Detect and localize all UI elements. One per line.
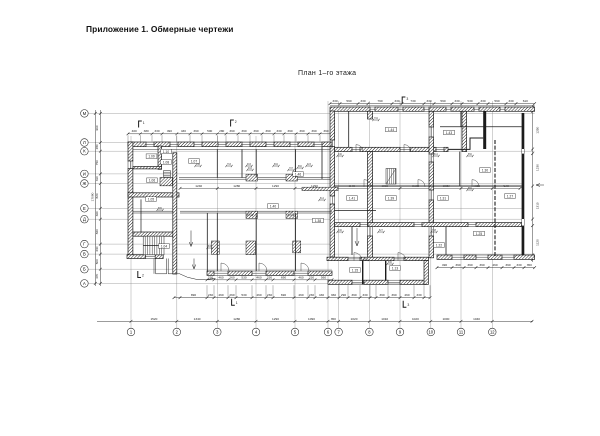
svg-text:690: 690 (281, 276, 286, 280)
svg-text:910: 910 (248, 212, 253, 215)
svg-text:730: 730 (410, 99, 415, 103)
svg-text:330: 330 (332, 99, 337, 103)
svg-text:2: 2 (142, 274, 144, 278)
svg-text:230: 230 (208, 293, 213, 297)
svg-text:Л: Л (83, 140, 86, 145)
svg-text:390: 390 (323, 129, 328, 133)
svg-text:500: 500 (95, 259, 99, 264)
svg-text:330: 330 (276, 129, 281, 133)
svg-text:1.04: 1.04 (161, 244, 167, 248)
svg-text:290: 290 (341, 293, 346, 297)
svg-text:380: 380 (144, 129, 149, 133)
svg-text:390: 390 (229, 129, 234, 133)
svg-text:792: 792 (374, 117, 379, 120)
svg-text:1250: 1250 (536, 126, 540, 133)
svg-text:590: 590 (440, 99, 445, 103)
svg-text:763: 763 (227, 163, 232, 166)
svg-text:1310: 1310 (536, 202, 540, 209)
svg-text:10: 10 (429, 330, 434, 335)
svg-text:430: 430 (181, 129, 186, 133)
svg-text:Д: Д (83, 217, 86, 222)
svg-text:230: 230 (309, 276, 314, 280)
svg-text:1.08: 1.08 (163, 160, 169, 164)
svg-text:1170: 1170 (348, 184, 355, 188)
svg-text:830: 830 (208, 245, 213, 248)
svg-text:260: 260 (229, 276, 234, 280)
svg-text:940: 940 (338, 153, 343, 156)
svg-text:1.09: 1.09 (148, 155, 154, 159)
svg-text:1010: 1010 (381, 184, 388, 188)
svg-text:260: 260 (229, 293, 234, 297)
svg-text:490: 490 (167, 129, 172, 133)
svg-text:470: 470 (95, 273, 99, 278)
svg-text:814: 814 (320, 197, 325, 200)
svg-text:892: 892 (274, 163, 279, 166)
svg-text:460: 460 (404, 293, 409, 297)
svg-text:1.27: 1.27 (507, 194, 513, 198)
svg-text:2: 2 (235, 120, 237, 124)
svg-text:Е: Е (83, 206, 86, 211)
svg-text:1290: 1290 (272, 317, 279, 321)
svg-text:330: 330 (154, 129, 159, 133)
svg-text:390: 390 (391, 293, 396, 297)
svg-text:330: 330 (360, 99, 365, 103)
svg-text:280: 280 (95, 144, 99, 149)
svg-text:530: 530 (241, 293, 246, 297)
svg-text:1.30: 1.30 (482, 168, 488, 172)
svg-text:812: 812 (434, 153, 439, 156)
svg-text:330: 330 (454, 99, 459, 103)
svg-text:940: 940 (338, 229, 343, 232)
svg-text:Б: Б (83, 267, 86, 272)
svg-text:1: 1 (236, 301, 238, 305)
svg-text:390: 390 (299, 129, 304, 133)
svg-text:820: 820 (95, 229, 99, 234)
svg-text:797: 797 (289, 167, 294, 170)
svg-text:920: 920 (504, 184, 509, 188)
svg-text:1.15: 1.15 (352, 268, 358, 272)
svg-text:1.06: 1.06 (149, 179, 155, 183)
svg-text:350: 350 (331, 317, 336, 321)
svg-text:910: 910 (248, 167, 253, 170)
svg-text:946: 946 (196, 163, 201, 166)
svg-text:17080: 17080 (90, 192, 94, 201)
svg-text:1.39: 1.39 (388, 196, 394, 200)
svg-text:3: 3 (406, 97, 408, 101)
svg-text:610: 610 (523, 99, 528, 103)
svg-text:390: 390 (193, 129, 198, 133)
svg-text:390: 390 (505, 263, 510, 267)
svg-text:460: 460 (218, 276, 223, 280)
svg-text:330: 330 (394, 99, 399, 103)
svg-text:1230: 1230 (536, 164, 540, 171)
svg-text:923: 923 (307, 163, 312, 166)
svg-text:827: 827 (379, 229, 384, 232)
svg-text:530: 530 (467, 99, 472, 103)
svg-text:1.40: 1.40 (270, 204, 276, 208)
svg-text:390: 390 (241, 129, 246, 133)
svg-text:460: 460 (492, 263, 497, 267)
svg-text:960: 960 (95, 125, 99, 130)
svg-text:1090: 1090 (308, 317, 315, 321)
svg-text:390: 390 (253, 129, 258, 133)
svg-text:330: 330 (480, 99, 485, 103)
svg-text:1: 1 (143, 121, 145, 125)
svg-text:1000: 1000 (442, 317, 449, 321)
svg-text:1.41: 1.41 (349, 196, 355, 200)
svg-text:390: 390 (379, 293, 384, 297)
svg-text:А: А (83, 281, 86, 286)
svg-text:360: 360 (95, 211, 99, 216)
svg-text:330: 330 (508, 99, 513, 103)
svg-text:230: 230 (309, 293, 314, 297)
svg-text:430: 430 (319, 293, 324, 297)
svg-text:903: 903 (247, 163, 252, 166)
svg-text:1240: 1240 (195, 184, 202, 188)
svg-text:390: 390 (479, 263, 484, 267)
svg-text:1040: 1040 (473, 184, 480, 188)
svg-text:330: 330 (416, 293, 421, 297)
svg-text:390: 390 (265, 129, 270, 133)
svg-text:750: 750 (95, 160, 99, 165)
svg-text:1.25: 1.25 (476, 232, 482, 236)
svg-text:360: 360 (331, 293, 336, 297)
svg-text:1340: 1340 (194, 317, 201, 321)
svg-text:1.10: 1.10 (163, 150, 169, 154)
svg-text:1.31: 1.31 (440, 196, 446, 200)
svg-text:1.43: 1.43 (446, 131, 452, 135)
svg-text:390: 390 (351, 293, 356, 297)
svg-text:880: 880 (158, 207, 163, 210)
svg-text:850: 850 (468, 153, 473, 156)
svg-text:310: 310 (95, 176, 99, 181)
svg-text:М: М (83, 111, 87, 116)
svg-text:В: В (83, 252, 86, 257)
svg-text:460: 460 (298, 276, 303, 280)
svg-text:1.46: 1.46 (295, 172, 301, 176)
svg-text:1.38: 1.38 (315, 219, 321, 223)
svg-text:11: 11 (459, 330, 464, 335)
svg-text:460: 460 (218, 293, 223, 297)
svg-text:1.44: 1.44 (388, 128, 394, 132)
svg-text:690: 690 (281, 293, 286, 297)
svg-text:590: 590 (346, 99, 351, 103)
svg-text:500: 500 (207, 129, 212, 133)
svg-text:1280: 1280 (233, 184, 240, 188)
svg-text:280: 280 (219, 129, 224, 133)
svg-text:1010: 1010 (381, 317, 388, 321)
svg-text:860: 860 (298, 165, 303, 168)
svg-text:1.13: 1.13 (392, 266, 398, 270)
svg-text:330: 330 (516, 263, 521, 267)
svg-text:1.05: 1.05 (148, 197, 154, 201)
svg-text:820: 820 (95, 193, 99, 198)
svg-text:3: 3 (407, 303, 409, 307)
svg-text:460: 460 (256, 276, 261, 280)
svg-text:330: 330 (362, 293, 367, 297)
svg-text:797: 797 (289, 212, 294, 215)
svg-text:390: 390 (467, 263, 472, 267)
svg-text:560: 560 (321, 276, 326, 280)
svg-text:1290: 1290 (272, 184, 279, 188)
svg-text:1520: 1520 (150, 317, 157, 321)
svg-text:1120: 1120 (536, 239, 540, 246)
svg-text:330: 330 (426, 99, 431, 103)
svg-text:390: 390 (455, 263, 460, 267)
svg-text:390: 390 (287, 129, 292, 133)
svg-text:400: 400 (132, 129, 137, 133)
svg-text:490: 490 (442, 263, 447, 267)
svg-text:1.22: 1.22 (436, 243, 442, 247)
svg-text:1040: 1040 (473, 317, 480, 321)
svg-text:798: 798 (432, 229, 437, 232)
svg-text:460: 460 (256, 293, 261, 297)
svg-text:890: 890 (191, 293, 196, 297)
svg-text:850: 850 (468, 187, 473, 190)
svg-text:460: 460 (298, 293, 303, 297)
svg-text:230: 230 (267, 276, 272, 280)
svg-text:890: 890 (388, 261, 393, 264)
svg-text:590: 590 (494, 99, 499, 103)
svg-text:330: 330 (95, 246, 99, 251)
svg-text:12: 12 (490, 330, 495, 335)
svg-text:922: 922 (364, 257, 369, 260)
svg-text:1020: 1020 (351, 317, 358, 321)
svg-text:350: 350 (527, 263, 532, 267)
svg-text:1020: 1020 (412, 317, 419, 321)
svg-text:1000: 1000 (442, 184, 449, 188)
svg-text:230: 230 (267, 293, 272, 297)
svg-text:Ж: Ж (83, 181, 87, 186)
svg-text:530: 530 (241, 276, 246, 280)
svg-text:1280: 1280 (233, 317, 240, 321)
svg-text:И: И (83, 171, 86, 176)
svg-text:790: 790 (377, 99, 382, 103)
svg-text:390: 390 (311, 129, 316, 133)
